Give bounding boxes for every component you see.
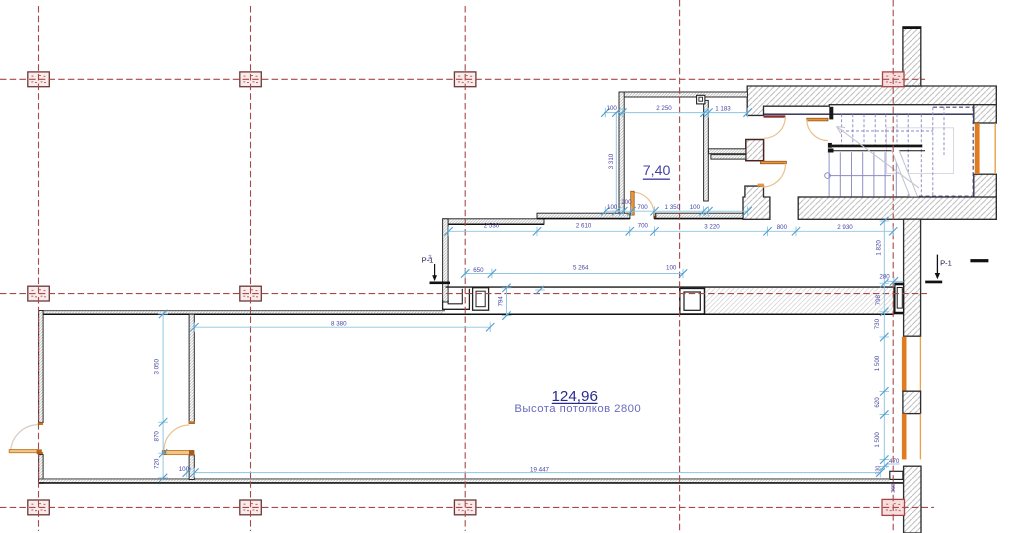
svg-text:1 350: 1 350 bbox=[665, 204, 681, 211]
svg-text:Р-1: Р-1 bbox=[940, 258, 952, 267]
svg-text:3 050: 3 050 bbox=[154, 358, 161, 374]
svg-text:794: 794 bbox=[428, 254, 433, 262]
svg-text:5 264: 5 264 bbox=[573, 264, 589, 271]
svg-text:2 250: 2 250 bbox=[656, 105, 672, 112]
svg-text:2 610: 2 610 bbox=[576, 223, 592, 230]
svg-text:360: 360 bbox=[891, 484, 897, 493]
svg-text:1 500: 1 500 bbox=[874, 355, 881, 371]
svg-text:620: 620 bbox=[874, 397, 881, 408]
svg-text:3 220: 3 220 bbox=[704, 224, 720, 231]
svg-text:800: 800 bbox=[777, 224, 788, 231]
svg-text:2 930: 2 930 bbox=[837, 224, 853, 231]
svg-text:794: 794 bbox=[497, 296, 504, 307]
svg-text:3 310: 3 310 bbox=[608, 153, 615, 169]
svg-text:650: 650 bbox=[473, 267, 484, 274]
svg-text:700: 700 bbox=[637, 204, 648, 211]
svg-text:470: 470 bbox=[889, 458, 900, 465]
svg-text:100: 100 bbox=[666, 264, 677, 271]
svg-text:700: 700 bbox=[638, 223, 649, 230]
svg-text:720: 720 bbox=[154, 458, 161, 469]
svg-text:1 820: 1 820 bbox=[876, 240, 883, 256]
svg-text:100: 100 bbox=[607, 204, 618, 211]
svg-text:100: 100 bbox=[690, 204, 701, 211]
svg-text:Высота потолков 2800: Высота потолков 2800 bbox=[514, 403, 641, 415]
svg-text:2 530: 2 530 bbox=[484, 223, 500, 230]
svg-text:19 447: 19 447 bbox=[530, 466, 549, 473]
svg-text:100: 100 bbox=[607, 105, 618, 112]
svg-text:200: 200 bbox=[621, 199, 632, 206]
svg-text:1 183: 1 183 bbox=[715, 106, 731, 113]
svg-text:730: 730 bbox=[874, 318, 881, 329]
svg-text:870: 870 bbox=[154, 431, 161, 442]
svg-text:7,40: 7,40 bbox=[643, 163, 671, 179]
svg-text:8 380: 8 380 bbox=[331, 320, 347, 327]
svg-text:280: 280 bbox=[879, 274, 890, 281]
svg-text:798: 798 bbox=[875, 294, 882, 305]
svg-text:1 500: 1 500 bbox=[874, 432, 881, 448]
